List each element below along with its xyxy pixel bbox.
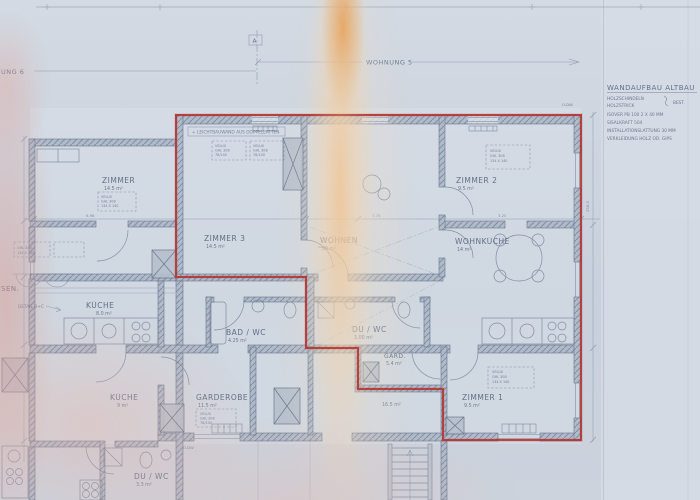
- wall-spec-line: INSTALLATIONSLATTUNG 30 MM: [607, 128, 676, 134]
- velux-note-line: GHL 308: [101, 200, 116, 204]
- room-area-zimmer-1: 9.5 m²: [464, 403, 480, 409]
- velux-note-line: 134 X 140: [492, 380, 509, 384]
- room-name-kueche-mid: KÜCHE: [86, 301, 114, 310]
- room-area-zimmer-3: 14.5 m²: [206, 244, 225, 250]
- room-name-zimmer: ZIMMER: [102, 176, 135, 185]
- velux-note-line: VELUX: [215, 144, 227, 148]
- room-name-zimmer-3: ZIMMER 3: [204, 234, 245, 243]
- wall-spec-line: ISOVER PB 100 2 X 40 MM: [607, 112, 664, 118]
- room-area-zimmer-2: 9.5 m²: [458, 186, 474, 192]
- shaft-box: [446, 417, 464, 434]
- room-area-bad-wc: 4.25 m²: [228, 338, 247, 344]
- dimension-value: 6.98: [86, 213, 95, 218]
- room-name-bad-wc: BAD / WC: [226, 328, 266, 337]
- velux-note-line: GHL 308: [253, 149, 268, 153]
- velux-note-line: VELUX: [492, 370, 504, 374]
- room-name-zimmer-2: ZIMMER 2: [456, 176, 497, 185]
- wall-spec-line: HOLZSTRICK: [607, 103, 635, 109]
- wall-spec-title: WANDAUFBAU ALTBAU: [607, 84, 695, 92]
- velux-note-line: 134 X 140: [101, 204, 118, 208]
- velux-note-line: VELUX: [101, 195, 113, 199]
- wall-spec-best: BEST.: [673, 100, 685, 106]
- wall-spec-line: SISALKRAFT 504: [607, 120, 643, 126]
- wall-spec-line: VERKLEIDUNG HOLZ OD. GIPS: [607, 136, 672, 142]
- dimension-value: 258.5: [585, 201, 590, 212]
- room-name-wohnkueche: WOHNKÜCHE: [455, 237, 510, 246]
- room-area-zimmer: 14.5 m²: [104, 186, 123, 192]
- velux-note-line: 78/140: [215, 153, 227, 157]
- room-name-zimmer-1: ZIMMER 1: [462, 393, 503, 402]
- velux-note-line: VELUX: [253, 144, 265, 148]
- velux-note-line: VELUX: [490, 149, 502, 153]
- odw-note-top: O.DW: [562, 102, 573, 107]
- shaft-box: [152, 250, 176, 278]
- room-area-wohnkueche: 14 m²: [457, 247, 471, 253]
- velux-note-line: GHL 308: [215, 149, 230, 153]
- lightweight-wall-note: + LEICHTBAUWAND AUS DOPPELLATTEN: [192, 130, 279, 136]
- wall-spec-line: HOLZSCHINDELN: [607, 96, 644, 102]
- velux-note-line: 134 X 140: [490, 159, 507, 163]
- velux-note-line: GHL 308: [490, 154, 505, 158]
- scanned-floor-plan: UNG 6 WOHNUNG 5 A + LEICHTBAUWAND AUS DO…: [0, 0, 700, 500]
- floor-plan-svg: UNG 6 WOHNUNG 5 A + LEICHTBAUWAND AUS DO…: [0, 0, 700, 500]
- velux-note-line: GHL 308: [492, 375, 507, 379]
- velux-note-line: 78/140: [253, 153, 265, 157]
- dimension-value: 3.25: [498, 213, 507, 218]
